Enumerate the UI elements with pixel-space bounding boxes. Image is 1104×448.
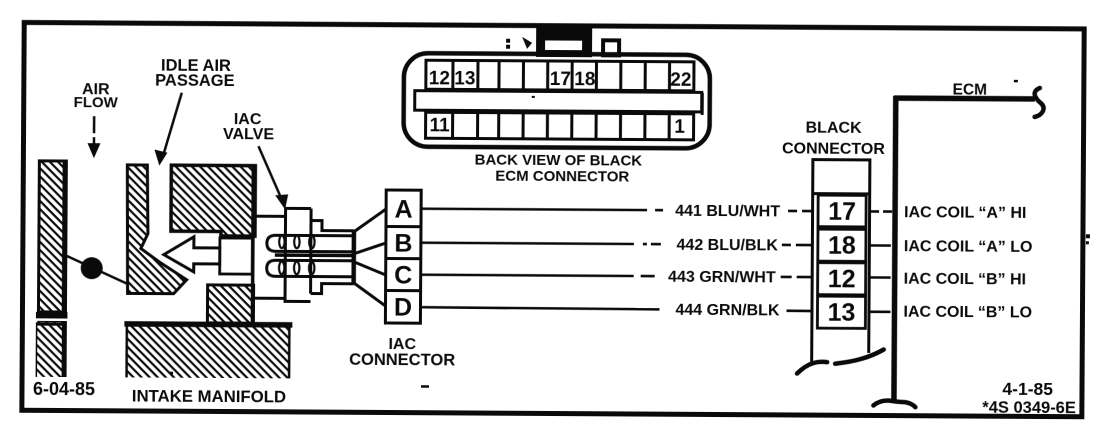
svg-text:CONNECTOR: CONNECTOR (782, 140, 885, 158)
svg-text:17: 17 (550, 69, 571, 90)
svg-text:INTAKE MANIFOLD: INTAKE MANIFOLD (132, 386, 286, 406)
svg-text:*4S 0349-6E: *4S 0349-6E (982, 399, 1076, 418)
svg-text:1: 1 (674, 117, 685, 138)
svg-text:ECM CONNECTOR: ECM CONNECTOR (495, 168, 629, 186)
svg-text:FLOW: FLOW (74, 94, 119, 111)
svg-text:IAC COIL “A” LO: IAC COIL “A” LO (904, 238, 1033, 256)
svg-text:VALVE: VALVE (223, 126, 274, 143)
svg-text:17: 17 (828, 198, 856, 226)
svg-text:12: 12 (828, 265, 856, 293)
svg-text:CONNECTOR: CONNECTOR (349, 351, 455, 370)
svg-text:444 GRN/BLK: 444 GRN/BLK (675, 302, 780, 320)
svg-text:D: D (394, 294, 412, 322)
svg-text:18: 18 (574, 69, 595, 90)
svg-text:C: C (394, 262, 412, 290)
svg-text:11: 11 (429, 115, 450, 136)
svg-text:PASSAGE: PASSAGE (155, 72, 235, 90)
svg-text:442 BLU/BLK: 442 BLU/BLK (676, 237, 778, 255)
svg-text:A: A (394, 196, 412, 224)
svg-text:22: 22 (670, 70, 691, 91)
svg-text:BLACK: BLACK (806, 120, 863, 137)
svg-text:443 GRN/WHT: 443 GRN/WHT (668, 269, 776, 287)
svg-text:18: 18 (828, 232, 856, 260)
svg-text:IAC COIL “A” HI: IAC COIL “A” HI (904, 204, 1026, 222)
svg-text:12: 12 (429, 68, 450, 89)
svg-text:13: 13 (454, 68, 475, 89)
svg-text:4-1-85: 4-1-85 (1002, 379, 1053, 399)
svg-text:13: 13 (827, 299, 855, 327)
svg-text:441 BLU/WHT: 441 BLU/WHT (675, 203, 780, 221)
svg-text:6-04-85: 6-04-85 (33, 379, 95, 399)
svg-text:B: B (394, 230, 412, 258)
svg-text:ECM: ECM (953, 81, 988, 98)
svg-text:IAC COIL “B” HI: IAC COIL “B” HI (904, 271, 1026, 289)
svg-text:IAC COIL “B” LO: IAC COIL “B” LO (903, 304, 1032, 322)
